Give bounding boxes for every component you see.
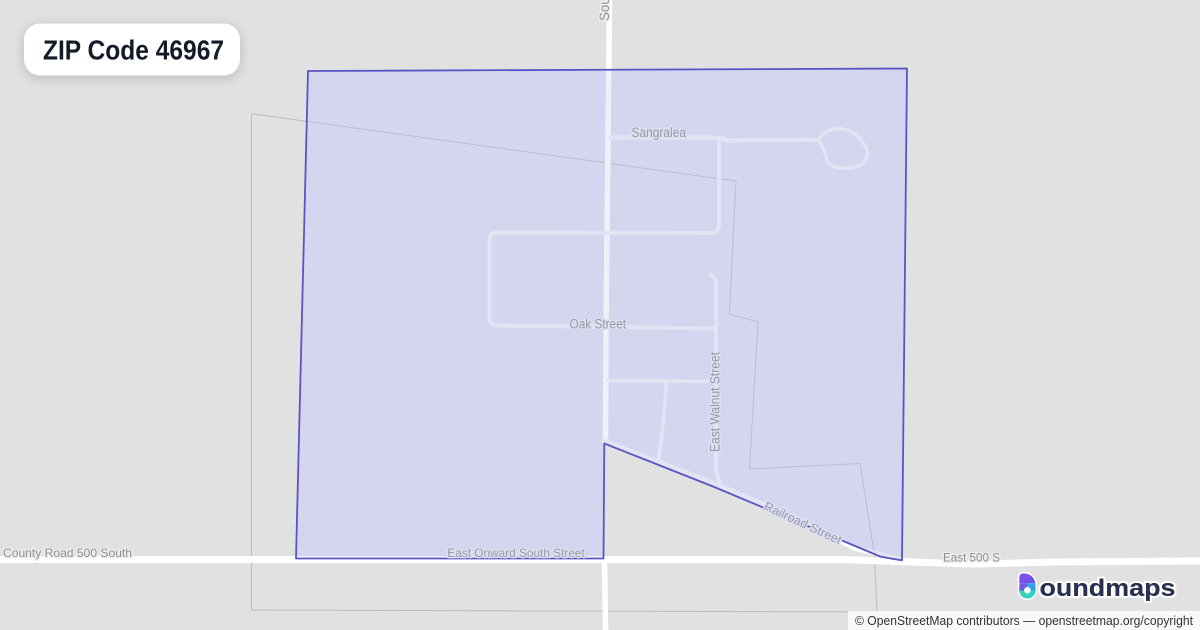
svg-text:© OpenStreetMap contributors —: © OpenStreetMap contributors — openstree…: [855, 614, 1194, 628]
svg-text:oundmaps: oundmaps: [1040, 575, 1176, 602]
svg-text:East Walnut Street: East Walnut Street: [708, 352, 723, 452]
svg-text:South Main St: South Main St: [597, 0, 612, 21]
svg-text:East 500 S: East 500 S: [943, 551, 1000, 565]
svg-text:County Road 500 South: County Road 500 South: [3, 546, 132, 560]
svg-text:Sangralea: Sangralea: [632, 125, 687, 140]
svg-text:Oak Street: Oak Street: [570, 317, 627, 332]
svg-text:East Onward South Street: East Onward South Street: [447, 546, 585, 560]
svg-text:ZIP Code 46967: ZIP Code 46967: [43, 35, 224, 66]
